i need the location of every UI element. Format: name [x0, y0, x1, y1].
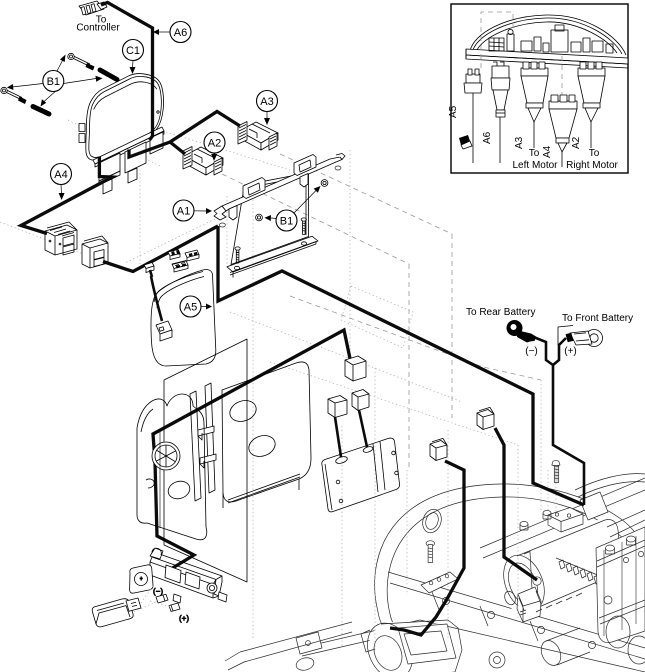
svg-text:A5: A5: [448, 105, 459, 118]
svg-text:(+): (+): [564, 346, 577, 357]
svg-text:B1: B1: [280, 216, 293, 228]
svg-text:Controller: Controller: [76, 23, 120, 34]
svg-text:B1: B1: [47, 76, 60, 88]
svg-text:(−): (−): [525, 346, 538, 357]
svg-text:C1: C1: [126, 45, 140, 57]
svg-text:A2: A2: [571, 136, 582, 149]
svg-text:A6: A6: [482, 131, 493, 144]
svg-text:A4: A4: [54, 169, 67, 181]
svg-text:A2: A2: [208, 138, 221, 150]
svg-text:To: To: [529, 148, 540, 159]
svg-text:A6: A6: [174, 27, 187, 39]
svg-text:A3: A3: [514, 136, 525, 149]
svg-text:To Front Battery: To Front Battery: [562, 313, 633, 324]
svg-text:A4: A4: [542, 145, 553, 158]
svg-text:A5: A5: [184, 302, 197, 314]
svg-text:Left Motor: Left Motor: [512, 160, 558, 171]
svg-text:A3: A3: [260, 96, 273, 108]
svg-text:Right Motor: Right Motor: [566, 160, 618, 171]
svg-text:To Rear Battery: To Rear Battery: [466, 307, 535, 318]
svg-text:(−): (−): [153, 587, 163, 596]
svg-text:(+): (+): [179, 614, 189, 623]
svg-text:To: To: [589, 148, 600, 159]
svg-text:A1: A1: [177, 206, 190, 218]
